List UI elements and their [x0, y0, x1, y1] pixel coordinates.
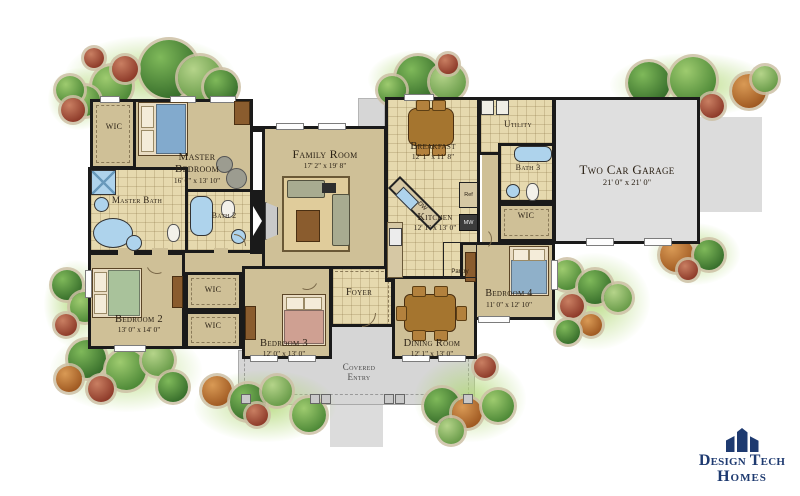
chair: [412, 286, 426, 297]
room-name: Bedroom 4: [485, 289, 532, 300]
microwave-oven: MW: [459, 214, 478, 231]
mw-label: MW: [464, 220, 474, 226]
label-wic-master: WIC: [106, 123, 122, 132]
bush: [55, 314, 77, 336]
ref-label: Ref: [464, 192, 473, 198]
room-name: Bath 2: [211, 212, 237, 221]
bush: [61, 98, 85, 122]
porch-column: [395, 394, 405, 404]
room-name: WIC: [205, 286, 221, 295]
garage-door: [586, 238, 614, 246]
shower: [91, 170, 116, 195]
room-name: Dining Room: [404, 338, 461, 349]
bush: [694, 240, 724, 270]
bush: [438, 418, 464, 444]
bathtub-3: [514, 146, 552, 162]
washer: [481, 100, 494, 115]
room-name: Utility: [504, 120, 532, 130]
bush: [482, 390, 514, 422]
chair: [432, 100, 446, 111]
label-bedroom-4: Bedroom 4 11' 0" x 12' 10": [485, 289, 532, 309]
bush: [700, 94, 724, 118]
window: [551, 260, 558, 290]
room-dims: 21' 0" x 21' 0": [579, 178, 674, 187]
wall-connector: [250, 126, 265, 132]
porch-column: [384, 394, 394, 404]
chair: [456, 306, 467, 321]
bush: [604, 284, 632, 312]
label-bedroom-3: Bedroom 3 12' 0" x 13' 0": [260, 338, 308, 358]
tv: [322, 183, 336, 193]
sink: [94, 197, 109, 212]
stove: [389, 228, 402, 246]
label-master-bedroom: Master Bedroom 16' 0" x 13' 10": [157, 152, 237, 185]
sink: [126, 235, 142, 251]
window: [318, 123, 346, 130]
room-dims: 11' 0" x 12' 10": [485, 301, 532, 309]
label-garage: Two Car Garage 21' 0" x 21' 0": [579, 163, 674, 187]
room-dims: 12' 1" x 13' 0": [414, 224, 457, 232]
room-name: Master Bath: [110, 196, 164, 206]
pillow: [529, 249, 545, 261]
room-name: Bath 3: [515, 164, 541, 173]
room-wic-right: [498, 203, 555, 242]
room-name: WIC: [106, 123, 122, 132]
porch-column: [463, 394, 473, 404]
sink: [506, 184, 520, 198]
bush: [474, 356, 496, 378]
label-covered-entry: Covered Entry: [331, 363, 387, 382]
bush: [438, 54, 458, 74]
bush: [112, 56, 138, 82]
pillow: [304, 297, 322, 310]
bed-master-blanket: [156, 104, 186, 154]
label-family-room: Family Room 17' 2" x 19' 8": [292, 148, 357, 170]
room-wic-master: [90, 99, 136, 169]
window: [210, 96, 236, 103]
bush: [88, 376, 114, 402]
bush: [560, 294, 584, 318]
room-name: Breakfast: [410, 141, 455, 152]
driveway: [700, 117, 762, 212]
label-utility: Utility: [504, 120, 532, 130]
label-wic-right: WIC: [518, 212, 534, 221]
bush: [56, 366, 82, 392]
room-dims: 17' 2" x 19' 8": [292, 162, 357, 170]
bush: [580, 314, 602, 336]
fireplace: [265, 202, 278, 240]
room-name: Kitchen: [414, 212, 457, 223]
room-name: WIC: [205, 322, 221, 331]
dining-table: [404, 294, 456, 332]
logo-bar-middle: [737, 428, 748, 452]
window: [276, 123, 304, 130]
room-dims: 12' 0" x 13' 0": [260, 350, 308, 358]
room-name: Bedroom 2: [115, 314, 163, 325]
garage-door: [644, 238, 672, 246]
porch-column: [310, 394, 320, 404]
pillow: [513, 249, 529, 261]
bush: [84, 48, 104, 68]
label-wic-hall-1: WIC: [205, 286, 221, 295]
dresser: [245, 306, 256, 340]
porch-column: [241, 394, 251, 404]
front-walkway: [330, 405, 383, 447]
logo-line2: Homes: [688, 469, 796, 486]
logo-bar-right: [750, 436, 759, 452]
room-name: Foyer: [346, 288, 372, 299]
label-breakfast: Breakfast 12' 1" x 11' 8": [410, 141, 455, 161]
dryer: [496, 100, 509, 115]
toilet: [167, 224, 180, 242]
dresser: [172, 276, 183, 308]
room-dims: 12' 1" x 11' 8": [410, 153, 455, 161]
pantry: Pantry: [443, 242, 477, 278]
pillow: [286, 297, 304, 310]
floor-plan: DW Ref MW Pantry: [0, 0, 800, 496]
pillow: [141, 130, 154, 152]
chair: [434, 286, 448, 297]
bush: [202, 376, 232, 406]
label-foyer: Foyer: [346, 288, 372, 299]
chair: [396, 306, 407, 321]
logo-line1: Design Tech: [688, 453, 796, 469]
label-wic-hall-2: WIC: [205, 322, 221, 331]
logo-bar-left: [726, 436, 735, 452]
room-name: WIC: [518, 212, 534, 221]
pillow: [141, 106, 154, 128]
window: [85, 270, 92, 298]
bush: [158, 372, 188, 402]
window: [478, 316, 510, 323]
window: [114, 345, 146, 352]
label-bedroom-2: Bedroom 2 13' 0" x 14' 0": [115, 314, 163, 334]
coffee-table: [296, 210, 320, 242]
refrigerator: Ref: [459, 182, 478, 208]
porch-column: [321, 394, 331, 404]
window: [100, 96, 120, 103]
chair: [416, 100, 430, 111]
toilet: [526, 183, 539, 201]
dishwasher-label: DW: [416, 201, 427, 212]
pillow: [94, 294, 107, 314]
bush: [246, 404, 268, 426]
dresser: [234, 101, 250, 125]
label-bath-2: Bath 2: [211, 212, 237, 221]
room-dims: 16' 0" x 13' 10": [157, 177, 237, 185]
bush: [678, 260, 698, 280]
closet-shelf-line: [96, 105, 130, 163]
bed-2-blanket: [108, 270, 140, 316]
pillow: [94, 272, 107, 292]
label-master-bath: Master Bath: [110, 196, 164, 206]
porch-entry-extension: [330, 326, 392, 356]
chaise: [332, 194, 350, 246]
room-name: Bedroom 3: [260, 338, 308, 349]
house-bars-icon: [688, 426, 796, 452]
room-dims: 13' 0" x 14' 0": [115, 326, 163, 334]
label-bath-3: Bath 3: [515, 164, 541, 173]
room-name: Family Room: [292, 148, 357, 161]
bush: [262, 376, 292, 406]
sofa: [287, 180, 325, 198]
room-name: Master Bedroom: [157, 152, 237, 176]
label-dining-room: Dining Room 12' 1" x 13' 0": [404, 338, 461, 358]
design-tech-homes-logo: Design Tech Homes: [688, 426, 796, 486]
bush: [752, 66, 778, 92]
bush: [556, 320, 580, 344]
room-name: Covered Entry: [331, 363, 387, 382]
room-dims: 12' 1" x 13' 0": [404, 350, 461, 358]
room-name: Two Car Garage: [579, 163, 674, 177]
bathtub-2: [190, 196, 213, 236]
label-kitchen: Kitchen 12' 1" x 13' 0": [414, 212, 457, 232]
pantry-label: Pantry: [451, 269, 468, 275]
